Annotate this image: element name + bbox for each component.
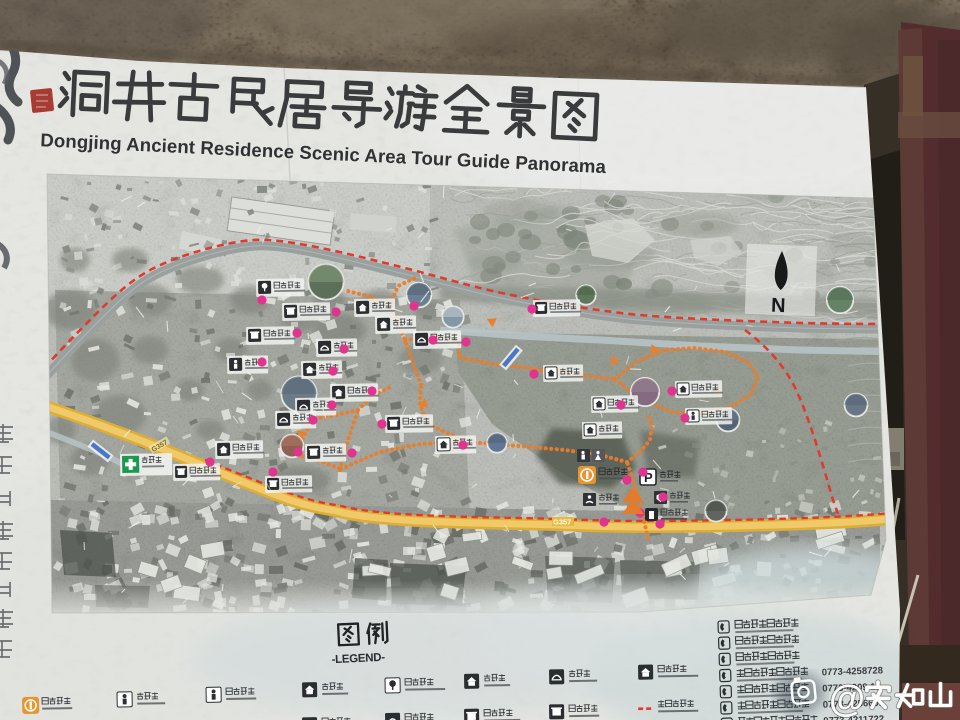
svg-text:N: N — [771, 295, 786, 317]
svg-text:G357: G357 — [553, 518, 571, 527]
svg-text:@: @ — [829, 678, 865, 719]
svg-text:0773-4258728: 0773-4258728 — [822, 665, 884, 678]
svg-text:-LEGEND-: -LEGEND- — [331, 652, 385, 666]
